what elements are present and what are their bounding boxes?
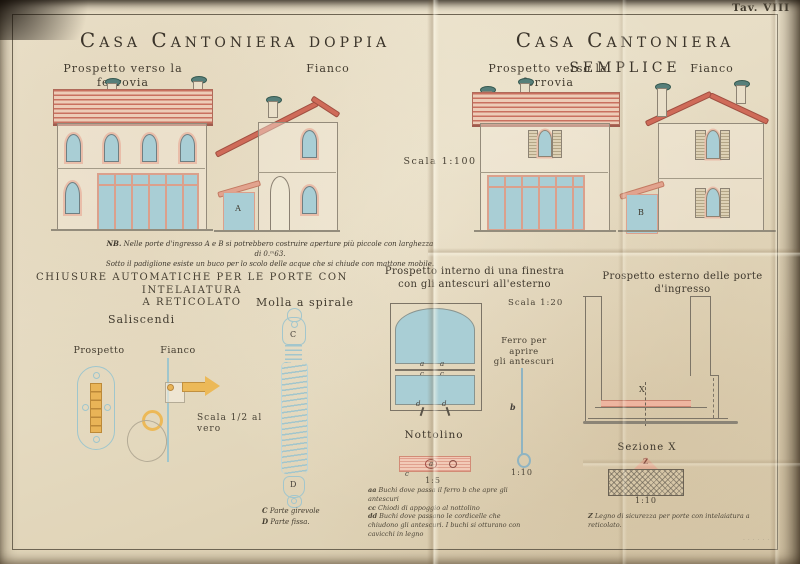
legend-text: Chiodi di appoggio al nottolino	[376, 504, 480, 512]
string-course	[57, 168, 205, 169]
chimney-icon	[266, 96, 280, 118]
rod-line	[521, 368, 523, 454]
doppia-title: Casa Cantoniera doppia	[75, 28, 395, 53]
ground-line	[51, 229, 213, 231]
legend-prefix: cc	[368, 504, 376, 512]
saliscendi-fianco-label: Fianco	[158, 345, 198, 357]
center-line	[645, 382, 646, 426]
shutter	[528, 130, 538, 158]
door-letter-b: B	[626, 208, 656, 218]
iron-rod-drawing: b 1:10	[500, 368, 544, 480]
nb-prefix: NB.	[107, 239, 122, 248]
door-arch	[270, 176, 290, 232]
chiusure-heading-line1: CHIUSURE AUTOMATICHE PER LE PORTE CON IN…	[36, 272, 348, 296]
shuttered-window	[695, 188, 730, 218]
letter-b: b	[510, 402, 516, 412]
shutter	[695, 130, 706, 160]
spring-letter-c: C	[290, 330, 296, 340]
scala-ferro-label: 1:10	[504, 468, 540, 478]
chiusure-heading-line2: A RETICOLATO	[142, 297, 241, 308]
roof	[53, 89, 213, 124]
window	[66, 134, 81, 162]
window-pane	[706, 188, 720, 217]
plate-number: Tav. VIII	[726, 2, 790, 15]
screw-hole	[82, 404, 89, 411]
latch-plate-drawing	[77, 366, 115, 450]
saliscendi-prospetto-label: Prospetto	[72, 345, 126, 357]
finestra-drawing: a a c c d d	[390, 303, 482, 411]
jamb-line	[718, 375, 719, 418]
legend-text: Buchi dove passa il ferro b che apre gli…	[368, 486, 508, 503]
porte-drawing: X	[583, 292, 783, 432]
jamb-line	[710, 296, 711, 376]
window	[65, 182, 80, 214]
spring-coil	[281, 362, 308, 474]
jamb-hidden-line	[713, 378, 714, 418]
ground-line	[214, 230, 340, 232]
handle-shaft	[182, 382, 207, 392]
ground-line	[583, 421, 738, 424]
handle-arrow-head	[205, 376, 220, 396]
section-hatch	[608, 469, 684, 496]
shutter	[552, 130, 562, 158]
doppia-side-label: Fianco	[298, 62, 358, 76]
window	[142, 134, 157, 162]
jamb-line	[690, 296, 691, 376]
finestra-title-line2: con gli antescuri all'esterno	[398, 279, 551, 290]
nottolino-hole	[449, 460, 457, 468]
caption-d-prefix: D	[262, 517, 268, 526]
window	[302, 130, 317, 158]
string-course	[258, 172, 336, 173]
caption-c-text: Parte girevole	[270, 507, 320, 515]
nb-line1: Nelle porte d'ingresso A e B si potrebbe…	[121, 240, 433, 258]
doppia-side-drawing: A	[218, 82, 336, 234]
porch: B	[622, 180, 662, 232]
caption-c-prefix: C	[262, 506, 268, 515]
finestra-title: Prospetto interno di una finestra con gl…	[372, 266, 577, 291]
shutter	[695, 188, 706, 218]
screw-hole	[93, 436, 100, 443]
veranda-glazing	[487, 175, 585, 231]
letter-a: a	[440, 360, 444, 368]
semplice-side-label: Fianco	[682, 62, 742, 76]
nottolino-drawing: a c 1:5	[399, 456, 473, 490]
ferro-label-line2: gli antescuri	[494, 357, 554, 367]
spring-thread	[285, 345, 302, 360]
letter-c: c	[405, 470, 409, 478]
chimney-body	[268, 101, 278, 118]
jamb-line	[585, 296, 586, 422]
string-course	[480, 172, 608, 173]
spring-letter-d: D	[290, 480, 296, 490]
saliscendi-label: Saliscendi	[108, 313, 188, 327]
caption-z-text: Legno di sicurezza per porte con intelai…	[588, 512, 750, 529]
chimney-body	[736, 85, 746, 104]
counterweight-outline	[123, 416, 172, 466]
scala-20-label: Scala 1:20	[508, 298, 578, 309]
jamb-line	[690, 296, 710, 297]
ferro-label-line1: Ferro per aprire	[501, 336, 546, 357]
rod-loop	[517, 453, 531, 468]
porte-caption: Z Legno di sicurezza per porte con intel…	[588, 512, 766, 530]
legend-item: aa Buchi dove passa il ferro b che apre …	[368, 486, 524, 504]
ground-line	[618, 230, 776, 232]
ferro-label: Ferro per aprire gli antescuri	[486, 336, 562, 368]
chimney-icon	[734, 80, 748, 104]
semplice-front-drawing	[472, 78, 618, 232]
door-edge-line	[167, 358, 169, 462]
porch: A	[220, 180, 258, 230]
spring-hole	[291, 321, 298, 328]
doppia-front-drawing	[57, 80, 207, 232]
window	[180, 134, 195, 162]
threshold-bar	[601, 400, 691, 407]
shuttered-window	[695, 130, 730, 160]
letter-d: d	[416, 400, 420, 408]
window-glass-lower	[395, 375, 475, 405]
shutter	[720, 188, 731, 218]
printer-mark: · · · · · ·	[722, 538, 770, 544]
latch-bar	[90, 383, 102, 433]
scala-sezione-label: 1:10	[626, 496, 666, 506]
chimney-body	[657, 88, 667, 117]
window-glass-upper	[395, 308, 475, 364]
plate-paper: Tav. VIII Casa Cantoniera doppia Prospet…	[0, 0, 800, 564]
letter-a: a	[420, 360, 424, 368]
window	[104, 134, 119, 162]
transom-bar	[395, 369, 475, 371]
legend-item: dd Buchi dove passano le cordicelle che …	[368, 512, 524, 538]
door-letter-a: A	[223, 204, 253, 214]
scala-nottolino-label: 1:5	[415, 476, 451, 486]
roof	[472, 92, 620, 125]
chimney-icon	[655, 83, 669, 117]
veranda-glazing	[97, 173, 199, 231]
shuttered-window	[528, 130, 562, 158]
legend-prefix: dd	[368, 512, 377, 520]
string-course	[658, 178, 762, 179]
legend-text: Buchi dove passano le cordicelle che chi…	[368, 512, 520, 538]
jamb-line	[601, 296, 602, 406]
spring-captions: C Parte girevole D Parte fissa.	[262, 506, 352, 527]
caption-d-text: Parte fissa.	[270, 518, 309, 526]
legend-item: cc Chiodi di appoggio al nottolino	[368, 504, 524, 513]
screw-hole	[104, 404, 111, 411]
spiral-spring-drawing: C D	[278, 308, 310, 506]
pivot-dot	[167, 384, 174, 391]
finestra-title-line1: Prospetto interno di una finestra	[385, 266, 564, 277]
spring-hole	[291, 498, 297, 504]
nb-note: NB. Nelle porte d'ingresso A e B si potr…	[105, 239, 435, 269]
latch-side-drawing	[125, 358, 221, 464]
window-pane	[538, 130, 552, 157]
letter-z: Z	[643, 458, 648, 467]
semplice-side-drawing: B	[622, 76, 772, 234]
letter-x: X	[639, 385, 645, 395]
shutter	[720, 130, 731, 160]
base-line	[595, 407, 707, 408]
nottolino-label: Nottolino	[398, 429, 470, 442]
sezione-drawing: Z 1:10	[608, 452, 688, 504]
base-line	[588, 418, 728, 419]
ground-line	[474, 230, 616, 232]
window	[302, 186, 317, 214]
window-pane	[706, 130, 720, 159]
finestra-legend: aa Buchi dove passa il ferro b che apre …	[368, 486, 524, 539]
screw-hole	[93, 372, 100, 379]
